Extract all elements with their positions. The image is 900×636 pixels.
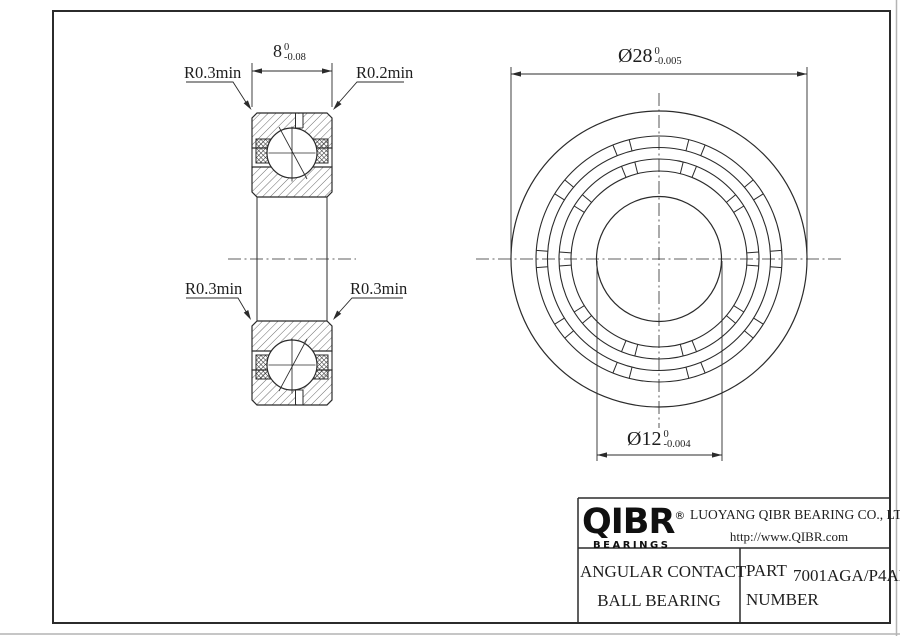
section-bottom-half (252, 321, 332, 405)
bore-dimension: Ø12 0 -0.004 (627, 429, 691, 450)
logo-text: QIBR (582, 502, 674, 542)
bore-dim-nominal: Ø12 (627, 429, 661, 450)
od-dim-nominal: Ø28 (618, 46, 652, 67)
engineering-drawing-page: 8 0 -0.08 R0.3min R0.2min R0.3min R0.3mi… (0, 0, 900, 636)
width-dim-tolerance: 0 -0.08 (284, 43, 306, 63)
fillet-label-top-left: R0.3min (184, 64, 241, 81)
company-name: LUOYANG QIBR BEARING CO., LTD (690, 507, 888, 522)
width-dimension: 8 0 -0.08 (273, 42, 306, 63)
fillet-label-mid-right: R0.3min (350, 280, 407, 297)
bearing-cross-section (228, 113, 356, 405)
registered-mark: ® (674, 509, 684, 522)
product-name-line1: ANGULAR CONTACT (580, 563, 738, 581)
fillet-label-mid-left: R0.3min (185, 280, 242, 297)
product-name-line2: BALL BEARING (580, 592, 738, 610)
width-dimension-lines (252, 63, 332, 107)
fillet-label-top-right: R0.2min (356, 64, 413, 81)
width-dim-nominal: 8 (273, 42, 282, 61)
section-top-half (252, 113, 332, 197)
company-logo: QIBR® BEARINGS (582, 499, 684, 551)
bearing-front-view (476, 93, 842, 428)
company-website: http://www.QIBR.com (690, 529, 888, 544)
part-label-line1: PART (746, 562, 787, 580)
bore-dim-tolerance: 0 -0.004 (663, 430, 690, 450)
part-number: 7001AGA/P4AH (793, 567, 900, 585)
part-label-line2: NUMBER (746, 591, 819, 609)
od-dimension: Ø28 0 -0.005 (618, 46, 682, 67)
od-dim-tolerance: 0 -0.005 (654, 47, 681, 67)
